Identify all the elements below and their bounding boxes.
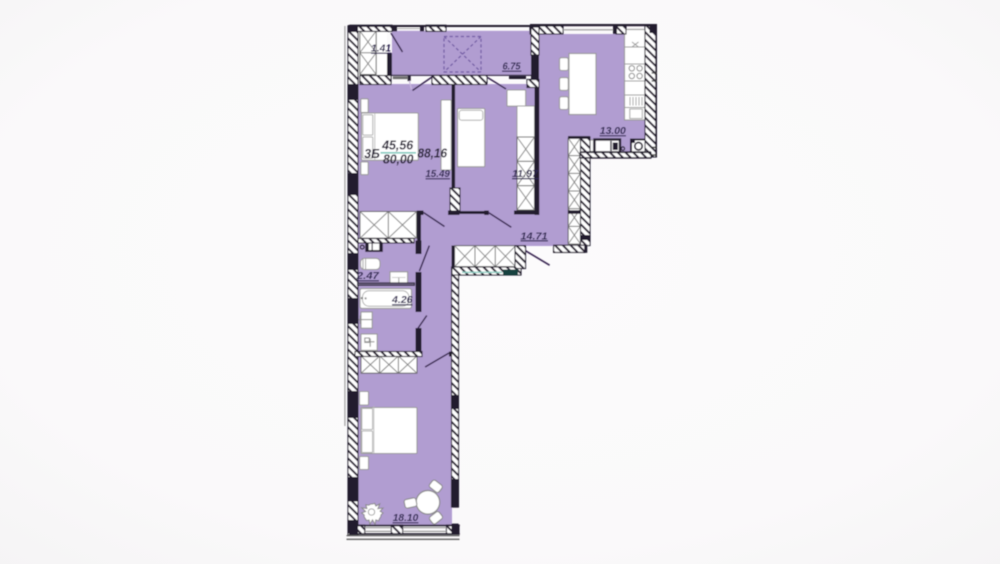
svg-text:3Б: 3Б bbox=[364, 147, 380, 161]
svg-text:80,00: 80,00 bbox=[383, 153, 414, 167]
svg-text:88,16: 88,16 bbox=[418, 147, 448, 161]
svg-text:45,56: 45,56 bbox=[381, 139, 414, 153]
